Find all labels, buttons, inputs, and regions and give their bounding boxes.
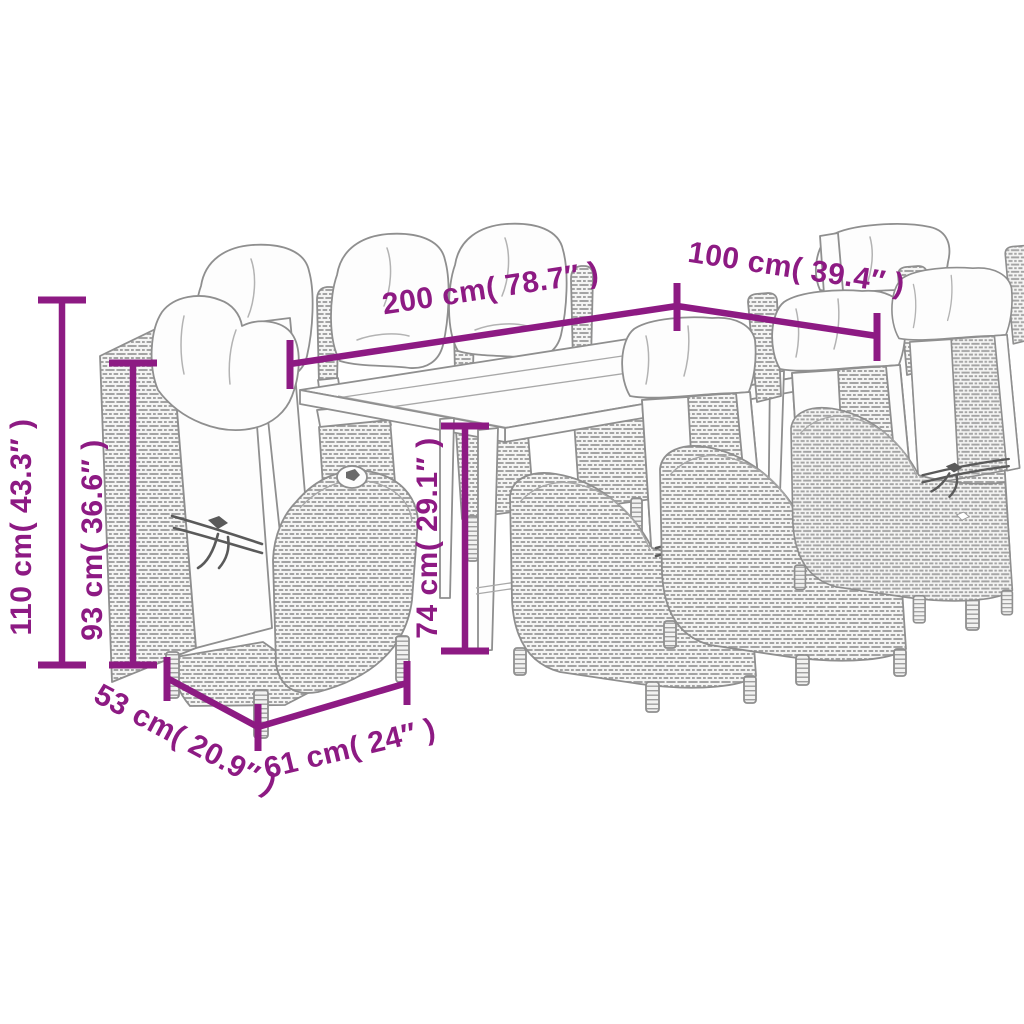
dimension-label-chair-height: 110 cm( 43.3″ ) [5, 418, 38, 635]
dimension-label-backrest-height: 93 cm( 36.6″ ) [76, 439, 109, 640]
product-dimension-diagram: 110 cm( 43.3″ ) 93 cm( 36.6″ ) 74 cm( 29… [0, 0, 1024, 1024]
dimension-label-seat-width: 61 cm( 24″ ) [261, 712, 439, 785]
dimension-chair-height: 110 cm( 43.3″ ) [5, 300, 86, 665]
dimension-label-table-height: 74 cm( 29.1″ ) [411, 437, 444, 638]
furniture-line-art [100, 224, 1024, 738]
diagram-canvas: 110 cm( 43.3″ ) 93 cm( 36.6″ ) 74 cm( 29… [0, 0, 1024, 1024]
